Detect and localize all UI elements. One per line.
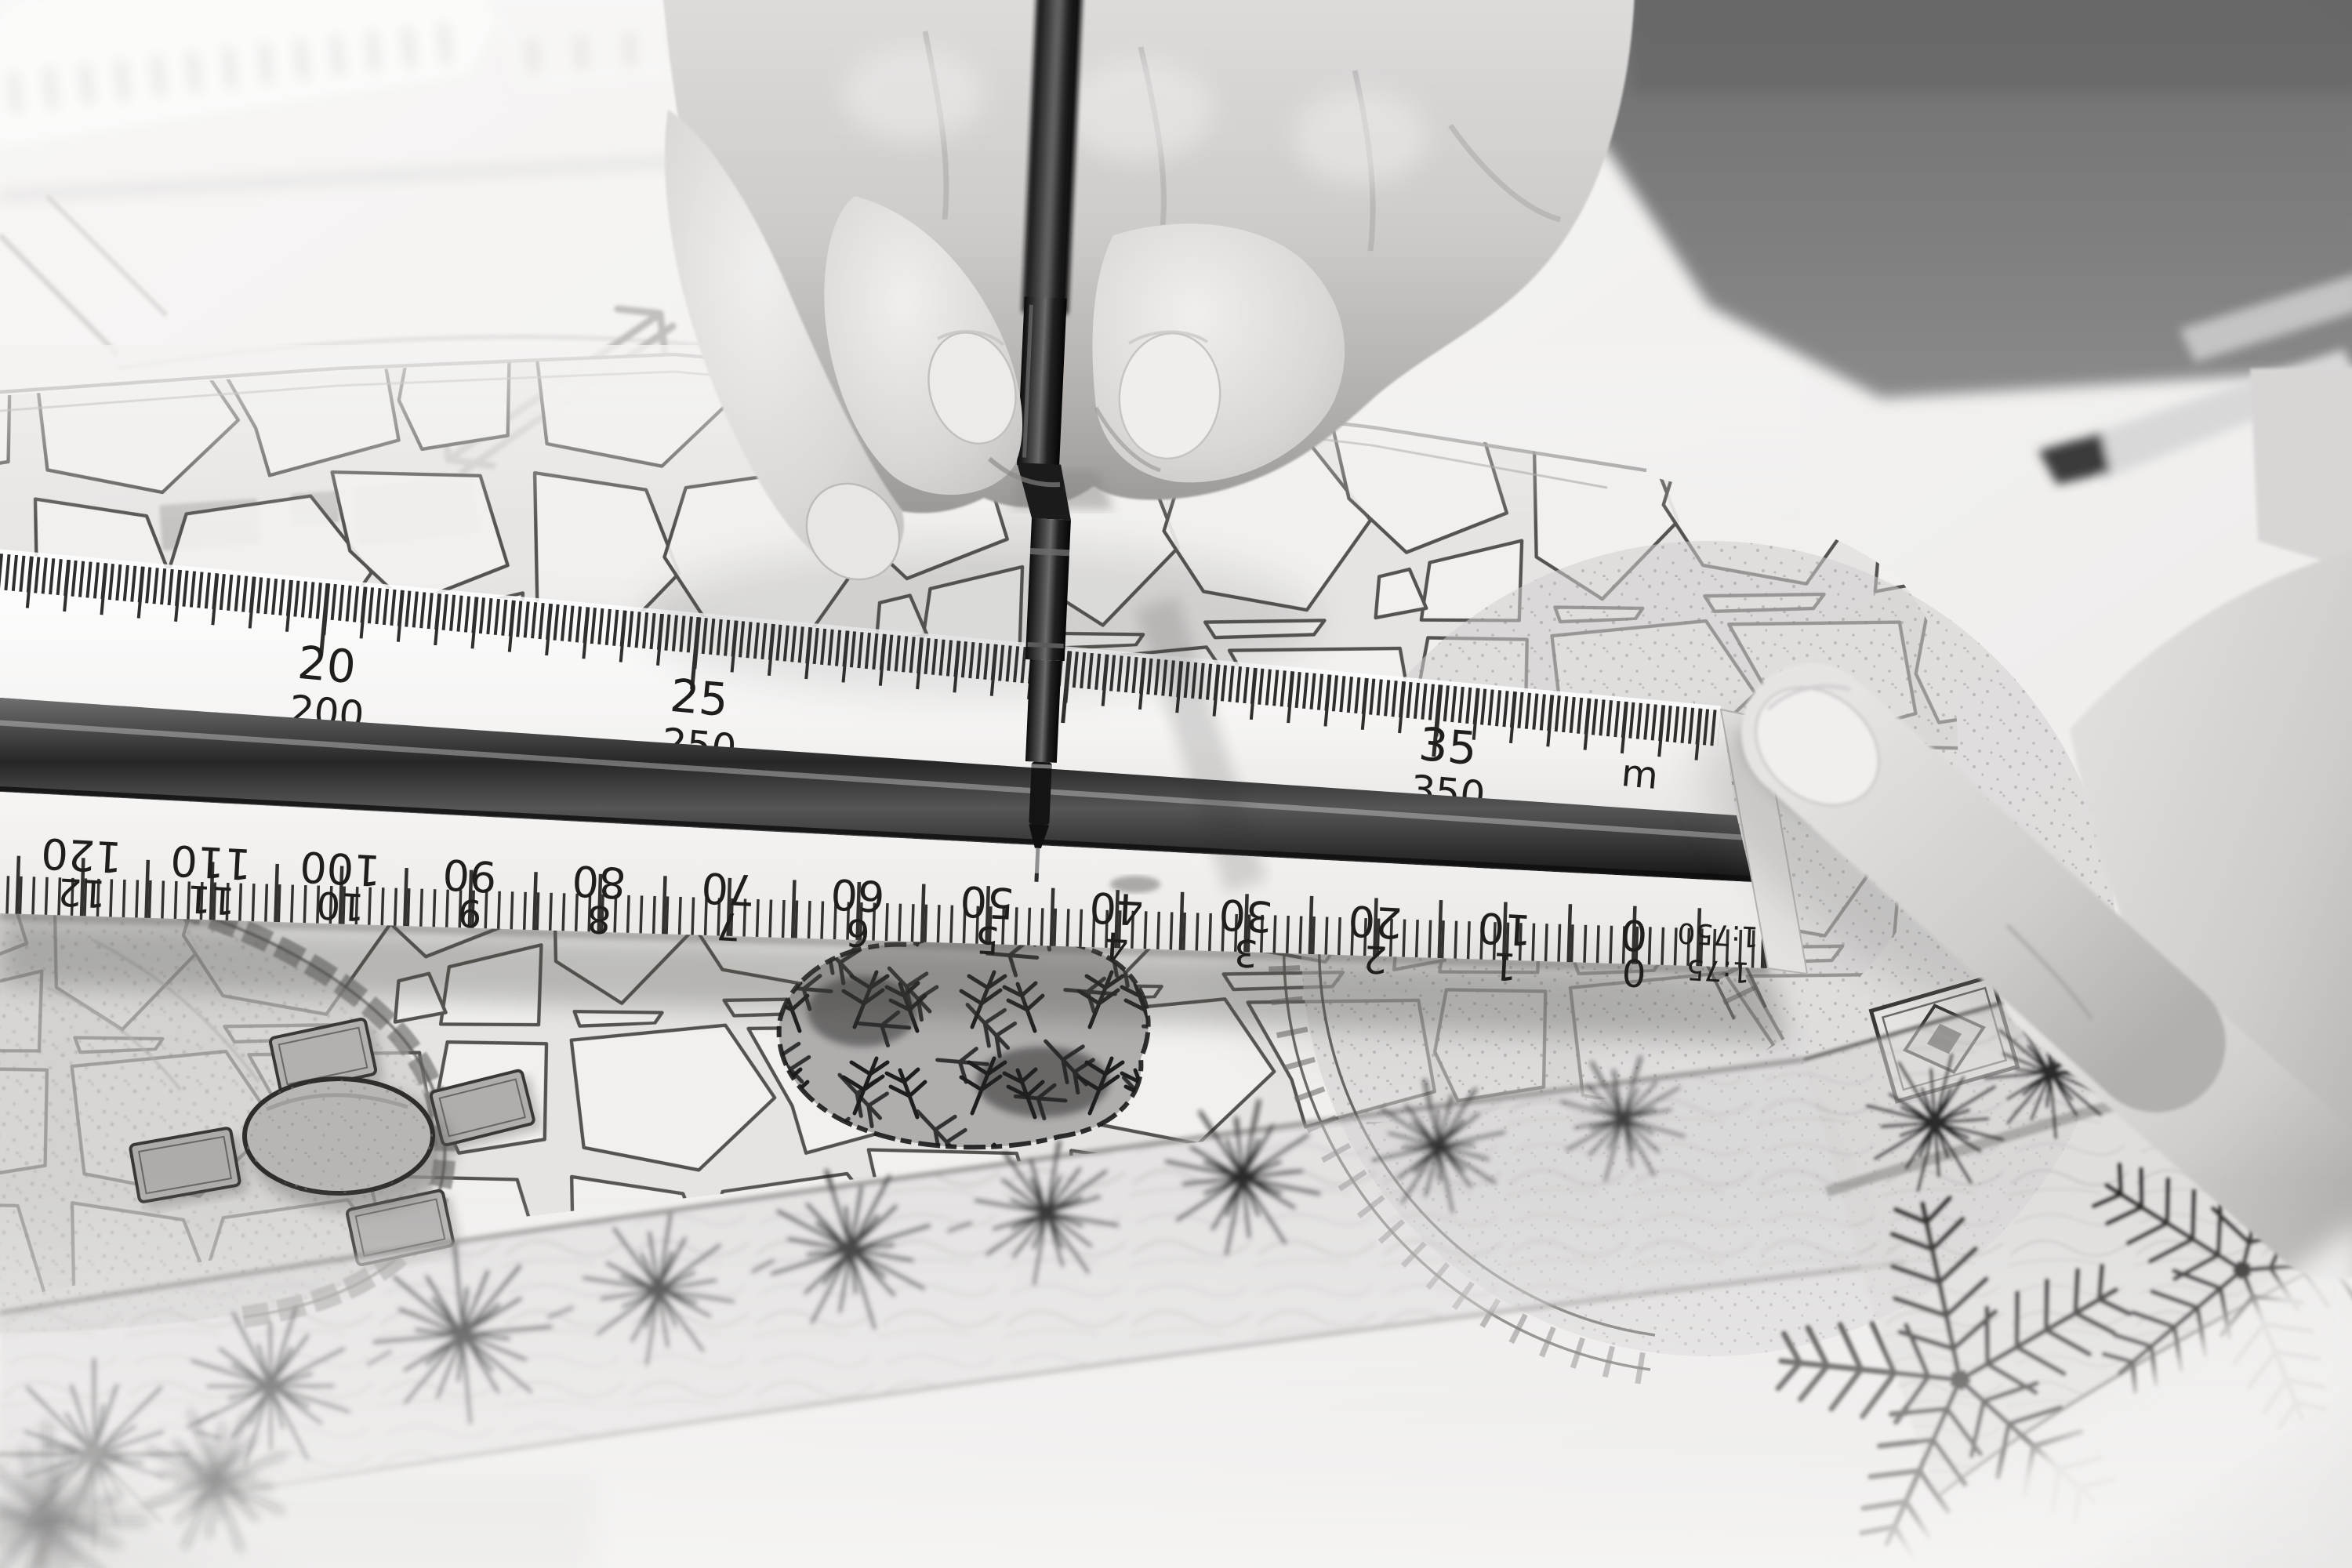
scene: 20 200 25 250 35 350 m m 120 12 110 11 1… [0,0,2352,1568]
photo-canvas: 20 200 25 250 35 350 m m 120 12 110 11 1… [0,0,2352,1568]
vignette [0,0,2352,1568]
